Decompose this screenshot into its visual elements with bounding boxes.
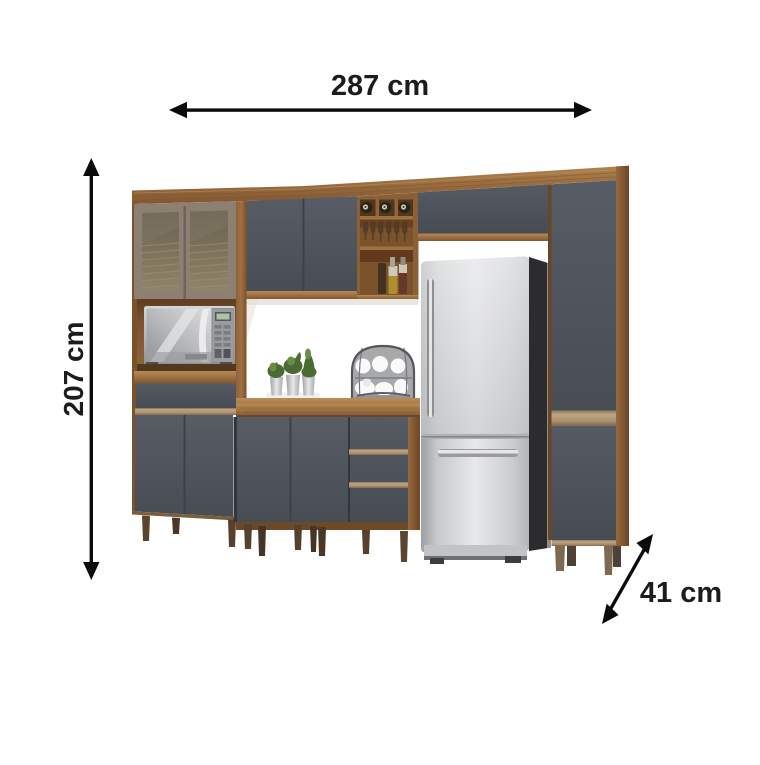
svg-text:207 cm: 207 cm <box>58 322 89 417</box>
svg-text:287 cm: 287 cm <box>331 70 429 102</box>
svg-text:41 cm: 41 cm <box>640 577 722 609</box>
